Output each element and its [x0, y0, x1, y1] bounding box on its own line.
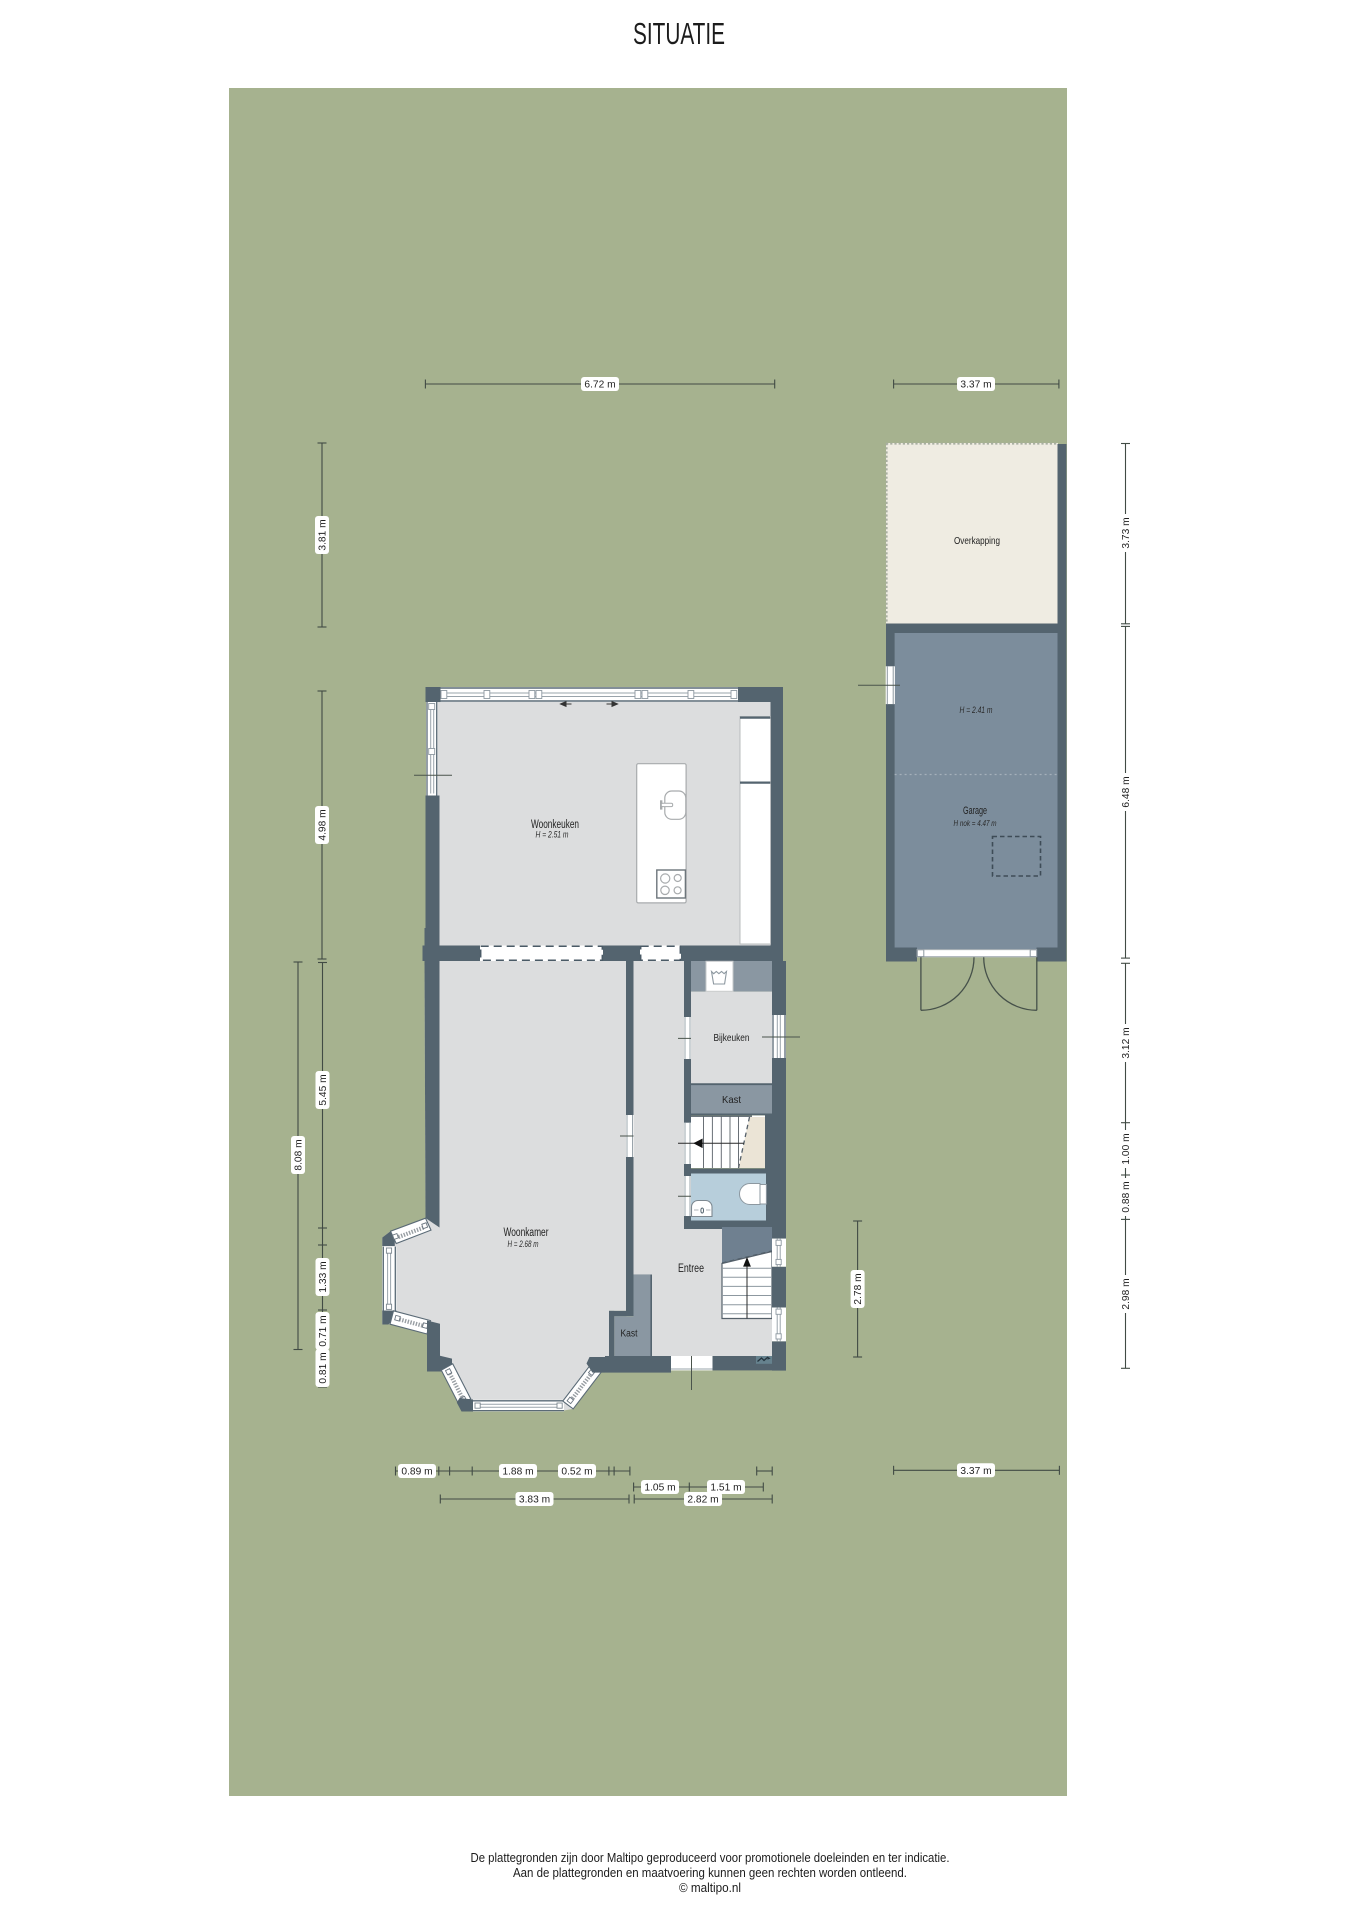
- svg-text:1.51 m: 1.51 m: [710, 1483, 741, 1494]
- svg-text:Kast: Kast: [621, 1329, 638, 1340]
- svg-text:1.00 m: 1.00 m: [1121, 1133, 1132, 1164]
- svg-text:Aan de plattegronden en maatvo: Aan de plattegronden en maatvoering kunn…: [513, 1866, 907, 1880]
- svg-text:H = 2.41 m: H = 2.41 m: [960, 705, 993, 715]
- svg-text:4.98 m: 4.98 m: [318, 809, 329, 840]
- svg-text:Garage: Garage: [963, 805, 987, 817]
- svg-text:0.89 m: 0.89 m: [401, 1467, 432, 1478]
- svg-text:H = 2.51 m: H = 2.51 m: [536, 830, 569, 840]
- svg-text:De plattegronden zijn door Mal: De plattegronden zijn door Maltipo gepro…: [471, 1851, 950, 1865]
- svg-text:1.88 m: 1.88 m: [502, 1467, 533, 1478]
- svg-text:6.72 m: 6.72 m: [584, 380, 615, 391]
- svg-text:SITUATIE: SITUATIE: [633, 16, 725, 51]
- svg-text:Entree: Entree: [678, 1263, 704, 1275]
- svg-text:1.05 m: 1.05 m: [644, 1483, 675, 1494]
- svg-text:Bijkeuken: Bijkeuken: [714, 1032, 750, 1044]
- svg-text:3.37 m: 3.37 m: [960, 380, 991, 391]
- svg-text:0.52 m: 0.52 m: [561, 1467, 592, 1478]
- svg-text:2.78 m: 2.78 m: [853, 1273, 864, 1304]
- svg-text:© maltipo.nl: © maltipo.nl: [679, 1881, 741, 1895]
- svg-text:3.83 m: 3.83 m: [519, 1495, 550, 1506]
- svg-text:2.82 m: 2.82 m: [687, 1495, 718, 1506]
- svg-text:0.81 m: 0.81 m: [318, 1352, 329, 1383]
- svg-text:0.71 m: 0.71 m: [318, 1315, 329, 1346]
- svg-text:Overkapping: Overkapping: [954, 535, 1000, 547]
- svg-text:3.73 m: 3.73 m: [1121, 517, 1132, 548]
- svg-text:Kast: Kast: [722, 1094, 741, 1106]
- svg-text:8.08 m: 8.08 m: [294, 1139, 305, 1170]
- svg-text:H = 2.68 m: H = 2.68 m: [508, 1239, 539, 1249]
- svg-text:6.48 m: 6.48 m: [1121, 776, 1132, 807]
- svg-text:H nok = 4.47 m: H nok = 4.47 m: [954, 818, 997, 828]
- svg-text:0.88 m: 0.88 m: [1121, 1181, 1132, 1212]
- svg-text:3.12 m: 3.12 m: [1121, 1027, 1132, 1058]
- svg-text:5.45 m: 5.45 m: [318, 1074, 329, 1105]
- svg-text:3.37 m: 3.37 m: [960, 1466, 991, 1477]
- svg-text:2.98 m: 2.98 m: [1121, 1278, 1132, 1309]
- svg-text:3.81 m: 3.81 m: [318, 519, 329, 550]
- svg-text:1.33 m: 1.33 m: [318, 1261, 329, 1292]
- svg-text:Woonkamer: Woonkamer: [504, 1227, 549, 1239]
